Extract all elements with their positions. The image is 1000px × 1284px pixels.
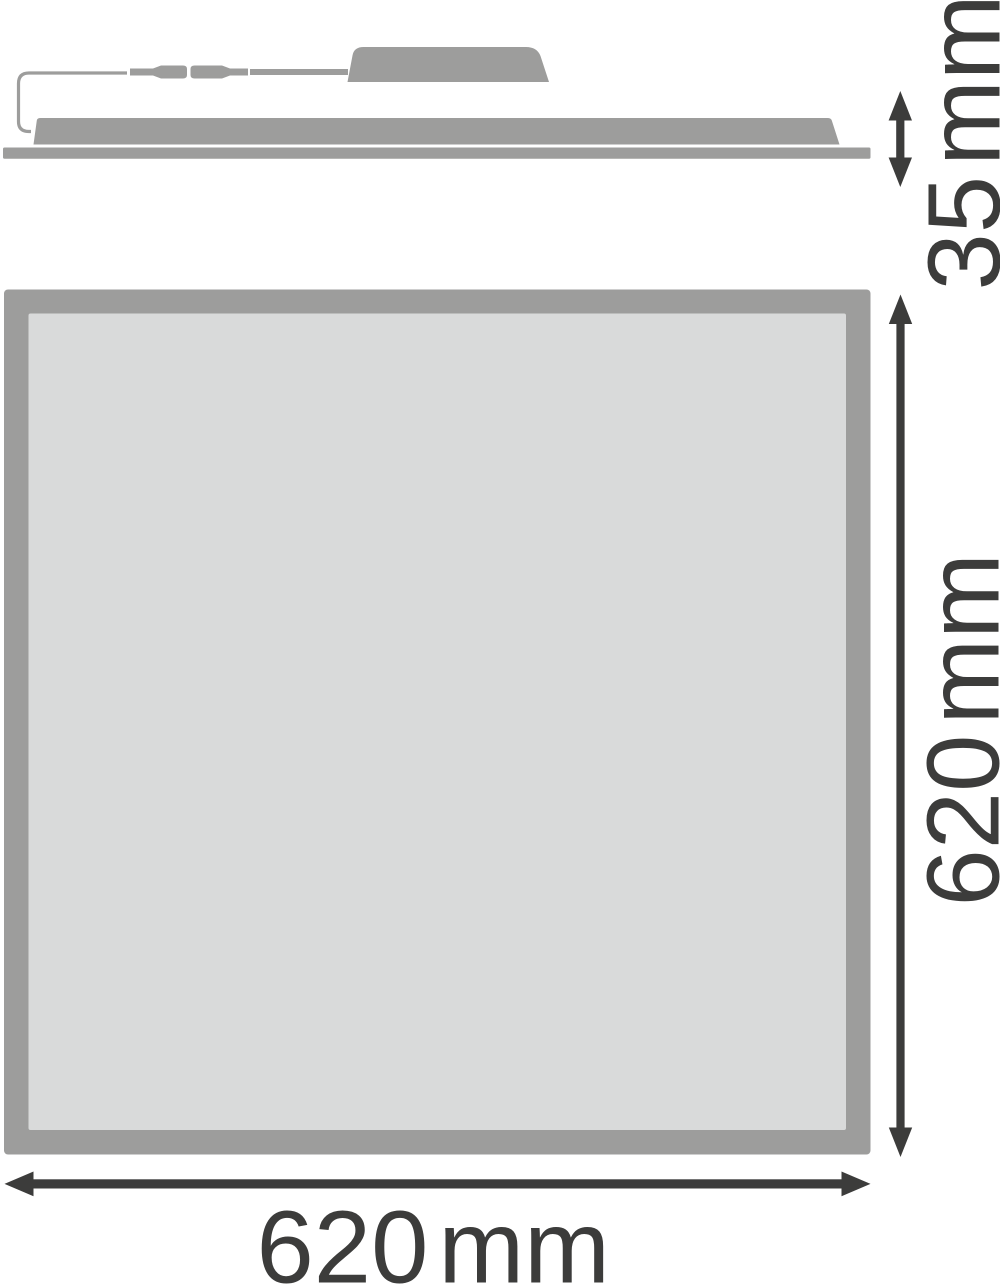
svg-text:35mm: 35mm [907, 0, 1000, 291]
svg-text:620mm: 620mm [906, 553, 1000, 906]
svg-text:620mm: 620mm [257, 1190, 610, 1284]
